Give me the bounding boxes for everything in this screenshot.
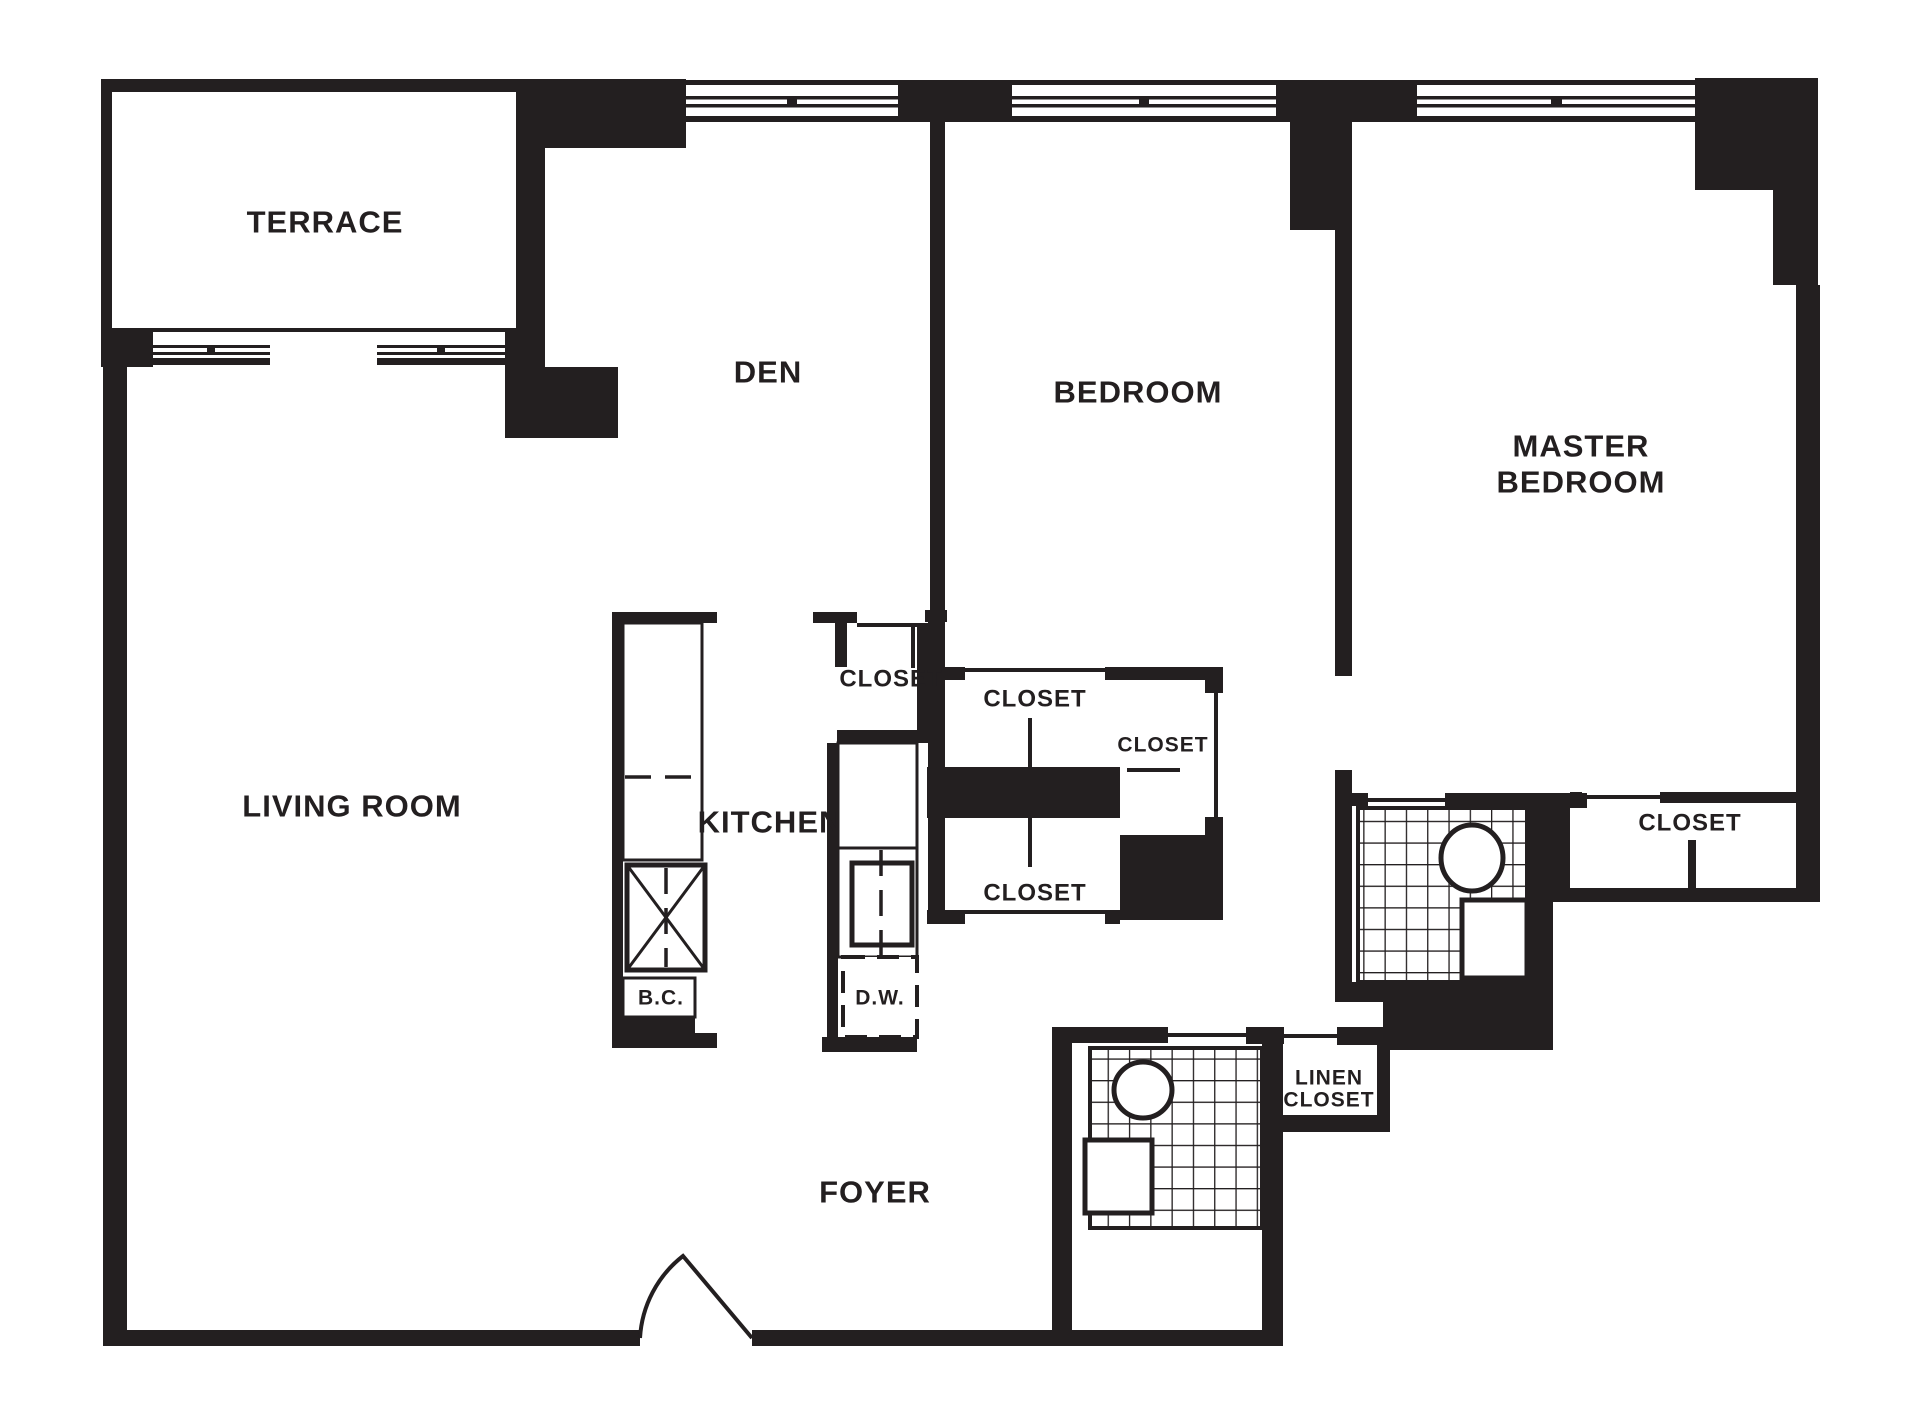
- foyer-bathroom: [1085, 1048, 1262, 1228]
- foyer-bath-tub: [1085, 1140, 1152, 1213]
- fixture-labels: B.C. D.W.: [638, 987, 905, 1010]
- closet-label-linen-line1: LINEN: [1295, 1067, 1363, 1090]
- kitchen-counter-upper: [838, 743, 917, 848]
- foyer-bath-toilet: [1114, 1062, 1172, 1118]
- floor-plan-page: TERRACE DEN BEDROOM MASTER BEDROOM LIVIN…: [0, 0, 1920, 1426]
- room-label-den: DEN: [734, 355, 802, 390]
- master-bathroom: [1358, 808, 1527, 986]
- closet-label-bedroom: CLOSET: [983, 686, 1086, 713]
- room-label-foyer: FOYER: [819, 1175, 931, 1210]
- room-label-master-line1: MASTER: [1513, 429, 1650, 464]
- room-label-master-line2: BEDROOM: [1497, 465, 1666, 500]
- room-labels: TERRACE DEN BEDROOM MASTER BEDROOM LIVIN…: [242, 205, 1665, 1210]
- kitchen-cabinet-run: [623, 623, 702, 860]
- entry-door-arc: [640, 1256, 752, 1338]
- fixture-label-dishwasher: D.W.: [855, 987, 905, 1010]
- walls: [101, 78, 1820, 1346]
- room-label-living-room: LIVING ROOM: [242, 789, 461, 824]
- closet-label-linen-line2: CLOSET: [1283, 1089, 1374, 1112]
- closet-label-master: CLOSET: [1638, 810, 1741, 837]
- master-bath-tub: [1462, 900, 1527, 978]
- closet-label-den: CLOSET: [839, 666, 942, 693]
- floor-plan-svg: TERRACE DEN BEDROOM MASTER BEDROOM LIVIN…: [0, 0, 1920, 1426]
- room-label-kitchen: KITCHEN: [698, 805, 843, 840]
- master-bath-toilet: [1441, 825, 1503, 891]
- closet-label-bedroom-side: CLOSET: [1117, 734, 1208, 757]
- closet-label-hall: CLOSET: [983, 880, 1086, 907]
- room-label-terrace: TERRACE: [247, 205, 404, 240]
- fixture-label-broom-closet: B.C.: [638, 987, 684, 1010]
- room-label-bedroom: BEDROOM: [1054, 375, 1223, 410]
